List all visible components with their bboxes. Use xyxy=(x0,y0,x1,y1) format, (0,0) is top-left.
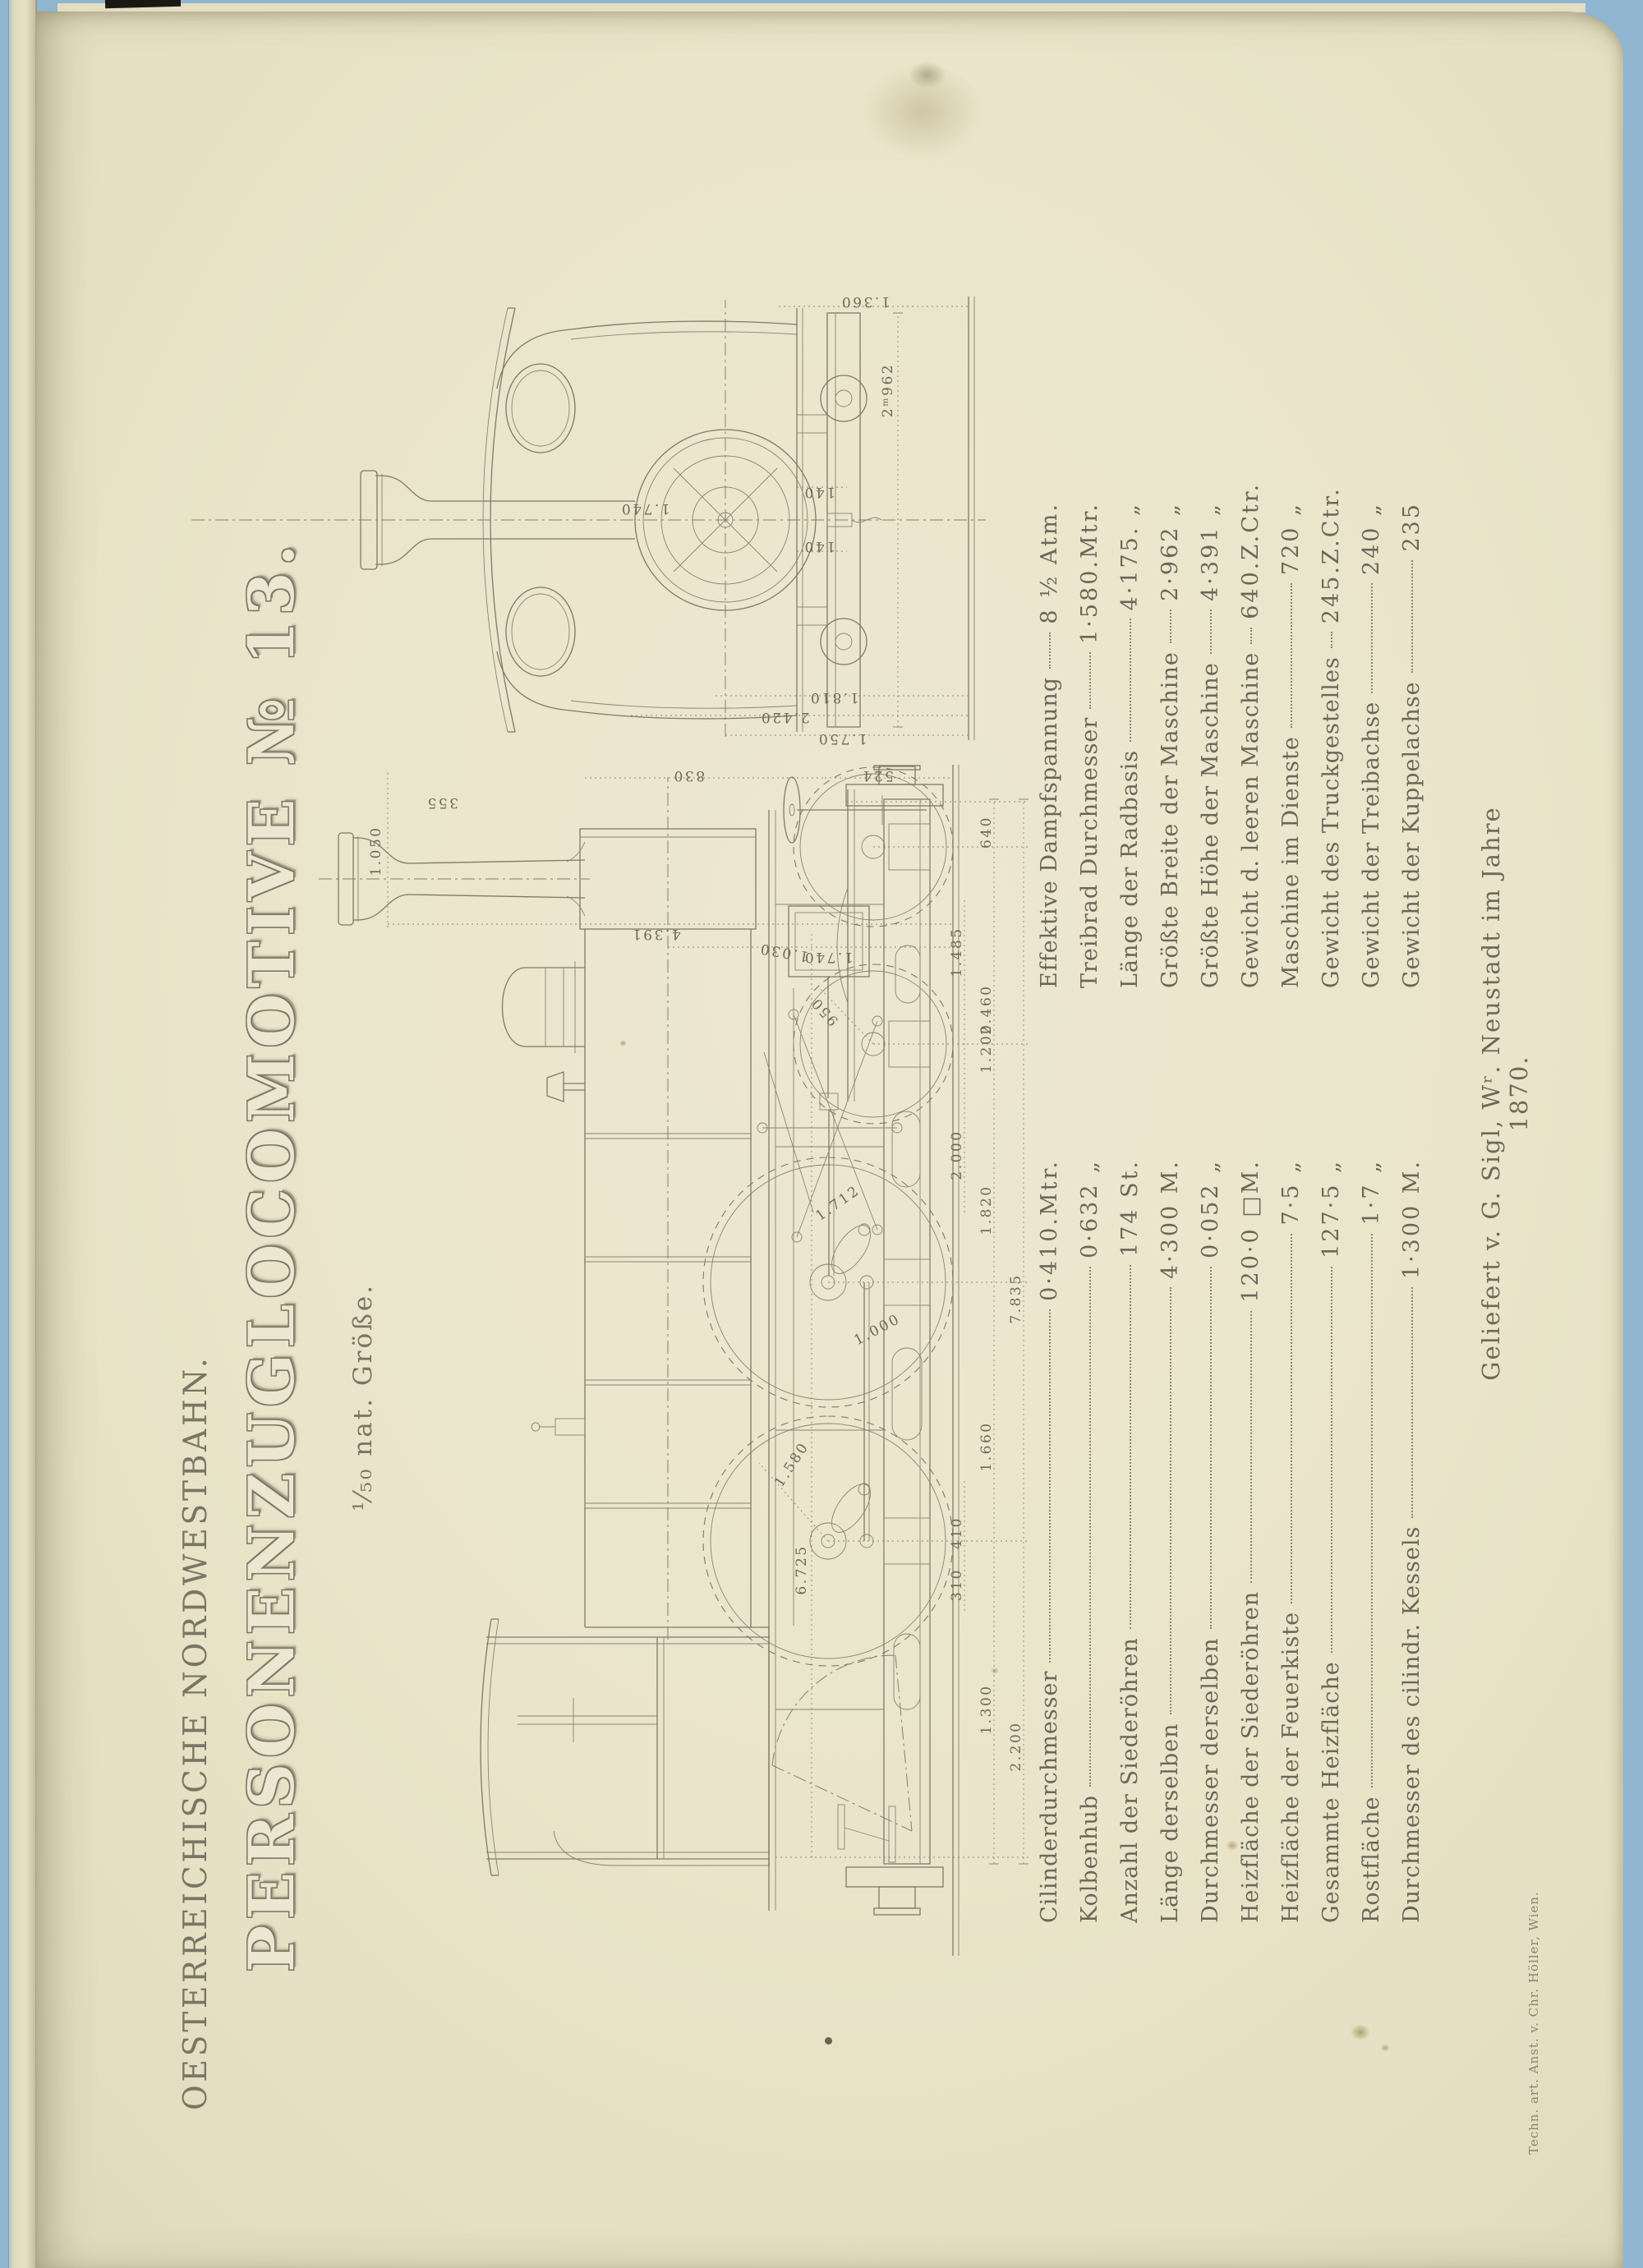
dimension-label: 140 xyxy=(803,484,835,500)
spec-value: 4·175. „ xyxy=(1117,502,1143,610)
spec-row: Effektive Dampfspannung8 ½ Atm. xyxy=(1037,502,1077,988)
spec-row: Gewicht d. leeren Maschine640.Z.Ctr. xyxy=(1238,502,1278,988)
spec-value: 7·5 „ xyxy=(1278,1159,1304,1226)
dotted-leader xyxy=(1331,632,1332,648)
dimension-label: 2.420 xyxy=(759,709,809,725)
dimension-label: 4.391 xyxy=(630,926,680,942)
spec-value: 127·5 „ xyxy=(1319,1159,1344,1258)
spec-label: Länge der Radbasis xyxy=(1117,750,1143,988)
dotted-leader xyxy=(1210,610,1212,654)
spec-value: 240 „ xyxy=(1359,502,1384,575)
dimension-label: 1.750 xyxy=(817,730,867,747)
rotated-plate-content: OESTERREICHISCHE NORDWESTBAHN. PERSONENZ… xyxy=(0,0,1643,2268)
spec-label: Durchmesser derselben xyxy=(1198,1637,1223,1923)
dotted-leader xyxy=(1170,610,1171,643)
spec-row: Länge der Radbasis4·175. „ xyxy=(1117,502,1157,988)
spec-label: Größte Höhe der Maschine xyxy=(1198,662,1223,988)
spec-row: Heizfläche der Siederöhren120·0 □M. xyxy=(1238,1159,1278,1923)
dotted-leader xyxy=(1371,1234,1373,1788)
dotted-leader xyxy=(1089,1267,1091,1787)
dotted-leader xyxy=(1411,560,1413,674)
dotted-leader xyxy=(1411,1287,1413,1518)
spec-label: Effektive Dampfspannung xyxy=(1037,677,1062,988)
spec-value: 0·632 „ xyxy=(1077,1159,1102,1258)
dimension-label: 1.050 xyxy=(368,826,384,876)
dimension-label: 6.725 xyxy=(794,1544,810,1594)
spec-label: Gewicht der Kuppelachse xyxy=(1399,681,1424,988)
spec-label: Maschine im Dienste xyxy=(1278,736,1304,988)
dimension-label: 1.712 xyxy=(812,1182,863,1224)
dimension-label: 2.460 xyxy=(978,984,995,1034)
dimension-label: 640 xyxy=(978,816,995,849)
spec-value: 2·962 „ xyxy=(1157,502,1183,601)
spec-row: Rostfläche1·7 „ xyxy=(1359,1159,1399,1923)
spec-value: 235 xyxy=(1399,502,1424,552)
spec-value: 1·7 „ xyxy=(1359,1159,1384,1226)
dimension-label: 1.030 xyxy=(757,940,810,964)
dimension-label: 1.360 xyxy=(840,293,890,310)
dimension-label: 2ᵐ962 xyxy=(880,363,896,417)
dotted-leader xyxy=(1089,652,1091,709)
dimension-label: 830 xyxy=(672,767,705,784)
spec-row: Heizfläche der Feuerkiste7·5 „ xyxy=(1278,1159,1319,1923)
dotted-leader xyxy=(1049,633,1051,669)
spec-label: Treibrad Durchmesser xyxy=(1077,717,1102,988)
dotted-leader xyxy=(1210,1267,1212,1630)
spec-row: Treibrad Durchmesser1·580.Mtr. xyxy=(1077,502,1117,988)
spec-label: Gewicht d. leeren Maschine xyxy=(1238,652,1263,988)
spec-label: Gewicht der Treibachse xyxy=(1359,702,1384,988)
spec-row: Länge derselben4·300 M. xyxy=(1157,1159,1198,1923)
dimension-label: 1.740 xyxy=(619,500,670,517)
spec-value: 245.Z.Ctr. xyxy=(1319,486,1344,623)
dimension-label: 140 xyxy=(803,538,835,554)
spec-row: Gesammte Heizfläche127·5 „ xyxy=(1319,1159,1359,1923)
spec-label: Heizfläche der Siederöhren xyxy=(1238,1591,1263,1923)
spec-row: Gewicht der Treibachse240 „ xyxy=(1359,502,1399,988)
spec-row: Durchmesser derselben0·052 „ xyxy=(1198,1159,1238,1923)
spec-value: 720 „ xyxy=(1278,502,1304,575)
dimension-label: 1.810 xyxy=(808,689,858,706)
railway-name: OESTERREICHISCHE NORDWESTBAHN. xyxy=(177,1355,214,2110)
spec-row: Gewicht der Kuppelachse235 xyxy=(1399,502,1439,988)
spec-row: Anzahl der Siederöhren174 St. xyxy=(1117,1159,1157,1923)
front-view-dimension-labels: 2ᵐ9621.7401.7502.4201.8101.360140140 xyxy=(185,288,1006,748)
dimension-label: 7.835 xyxy=(1008,1273,1024,1323)
dotted-leader xyxy=(1331,1267,1332,1653)
front-elevation-drawing: 2ᵐ9621.7401.7502.4201.8101.360140140 xyxy=(185,288,1006,748)
spec-value: 1·300 M. xyxy=(1399,1159,1424,1279)
spec-label: Durchmesser des cilindr. Kessels xyxy=(1399,1526,1424,1923)
dimension-label: 410 xyxy=(949,1516,965,1549)
spec-row: Größte Breite der Maschine2·962 „ xyxy=(1157,502,1198,988)
dotted-leader xyxy=(1170,1287,1171,1714)
spec-row: Kolbenhub0·632 „ xyxy=(1077,1159,1117,1923)
spec-label: Größte Breite der Maschine xyxy=(1157,651,1183,988)
spec-label: Rostfläche xyxy=(1359,1796,1384,1923)
spec-row: Durchmesser des cilindr. Kessels1·300 M. xyxy=(1399,1159,1439,1923)
dimension-label: 1.660 xyxy=(978,1421,995,1471)
side-view-dimension-labels: 1.0504.3911.7403558305249501.0306.7251.5… xyxy=(302,765,1042,1956)
dotted-leader xyxy=(1250,1311,1252,1583)
dimension-label: 2.000 xyxy=(949,1129,965,1180)
dimension-label: 524 xyxy=(861,767,894,784)
spec-value: 4·391 „ xyxy=(1198,502,1223,601)
dimension-label: 950 xyxy=(808,993,842,1028)
dimension-label: 1.485 xyxy=(949,927,965,977)
dotted-leader xyxy=(1049,1309,1051,1663)
printer-imprint: Techn. art. Anst. v. Chr. Höller, Wien. xyxy=(1526,1891,1541,2155)
spec-label: Länge derselben xyxy=(1157,1723,1183,1923)
spec-value: 0·052 „ xyxy=(1198,1159,1223,1258)
spec-label: Gewicht des Truckgestelles xyxy=(1319,656,1344,988)
spec-label: Cilinderdurchmesser xyxy=(1037,1671,1062,1923)
dotted-leader xyxy=(1291,1234,1292,1603)
spec-value: 4·300 M. xyxy=(1157,1159,1183,1279)
dimension-label: 2.200 xyxy=(1008,1721,1024,1771)
spec-row: Größte Höhe der Maschine4·391 „ xyxy=(1198,502,1238,988)
plate-title: PERSONENZUGLOCOMOTIVE № 13. xyxy=(235,822,308,1972)
spec-label: Anzahl der Siederöhren xyxy=(1117,1637,1143,1923)
spec-value: 1·580.Mtr. xyxy=(1077,502,1102,644)
dimension-label: 1.580 xyxy=(771,1439,812,1490)
manufacturer-credit: Geliefert v. G. Sigl, Wʳ. Neustadt im Ja… xyxy=(1477,773,1533,1414)
spec-row: Cilinderdurchmesser0·410.Mtr. xyxy=(1037,1159,1077,1923)
dimension-label: 1.740 xyxy=(803,949,853,965)
spec-label: Heizfläche der Feuerkiste xyxy=(1278,1612,1304,1923)
spec-value: 640.Z.Ctr. xyxy=(1238,482,1263,619)
spec-value: 120·0 □M. xyxy=(1238,1159,1263,1303)
spec-value: 0·410.Mtr. xyxy=(1037,1159,1062,1301)
dotted-leader xyxy=(1130,619,1131,741)
spec-label: Kolbenhub xyxy=(1077,1795,1102,1923)
spec-column-left: Cilinderdurchmesser0·410.Mtr.Kolbenhub0·… xyxy=(1037,1159,1439,1923)
dimension-label: 1.820 xyxy=(978,1185,995,1235)
dotted-leader xyxy=(1250,628,1252,644)
dimension-label: 1.000 xyxy=(851,1311,903,1349)
spec-label: Gesammte Heizfläche xyxy=(1319,1661,1344,1923)
side-elevation-drawing: 1.0504.3911.7403558305249501.0306.7251.5… xyxy=(302,765,1042,1956)
dimension-label: 310 xyxy=(949,1568,965,1601)
spec-column-right: Effektive Dampfspannung8 ½ Atm.Treibrad … xyxy=(1037,502,1439,988)
spec-value: 174 St. xyxy=(1117,1159,1143,1257)
spec-row: Maschine im Dienste720 „ xyxy=(1278,502,1319,988)
dimension-label: 1.300 xyxy=(978,1684,995,1734)
dimension-label: 355 xyxy=(426,794,458,811)
spec-value: 8 ½ Atm. xyxy=(1037,502,1062,624)
dotted-leader xyxy=(1291,583,1292,728)
dotted-leader xyxy=(1130,1265,1131,1629)
spec-row: Gewicht des Truckgestelles245.Z.Ctr. xyxy=(1319,502,1359,988)
dotted-leader xyxy=(1371,583,1373,693)
